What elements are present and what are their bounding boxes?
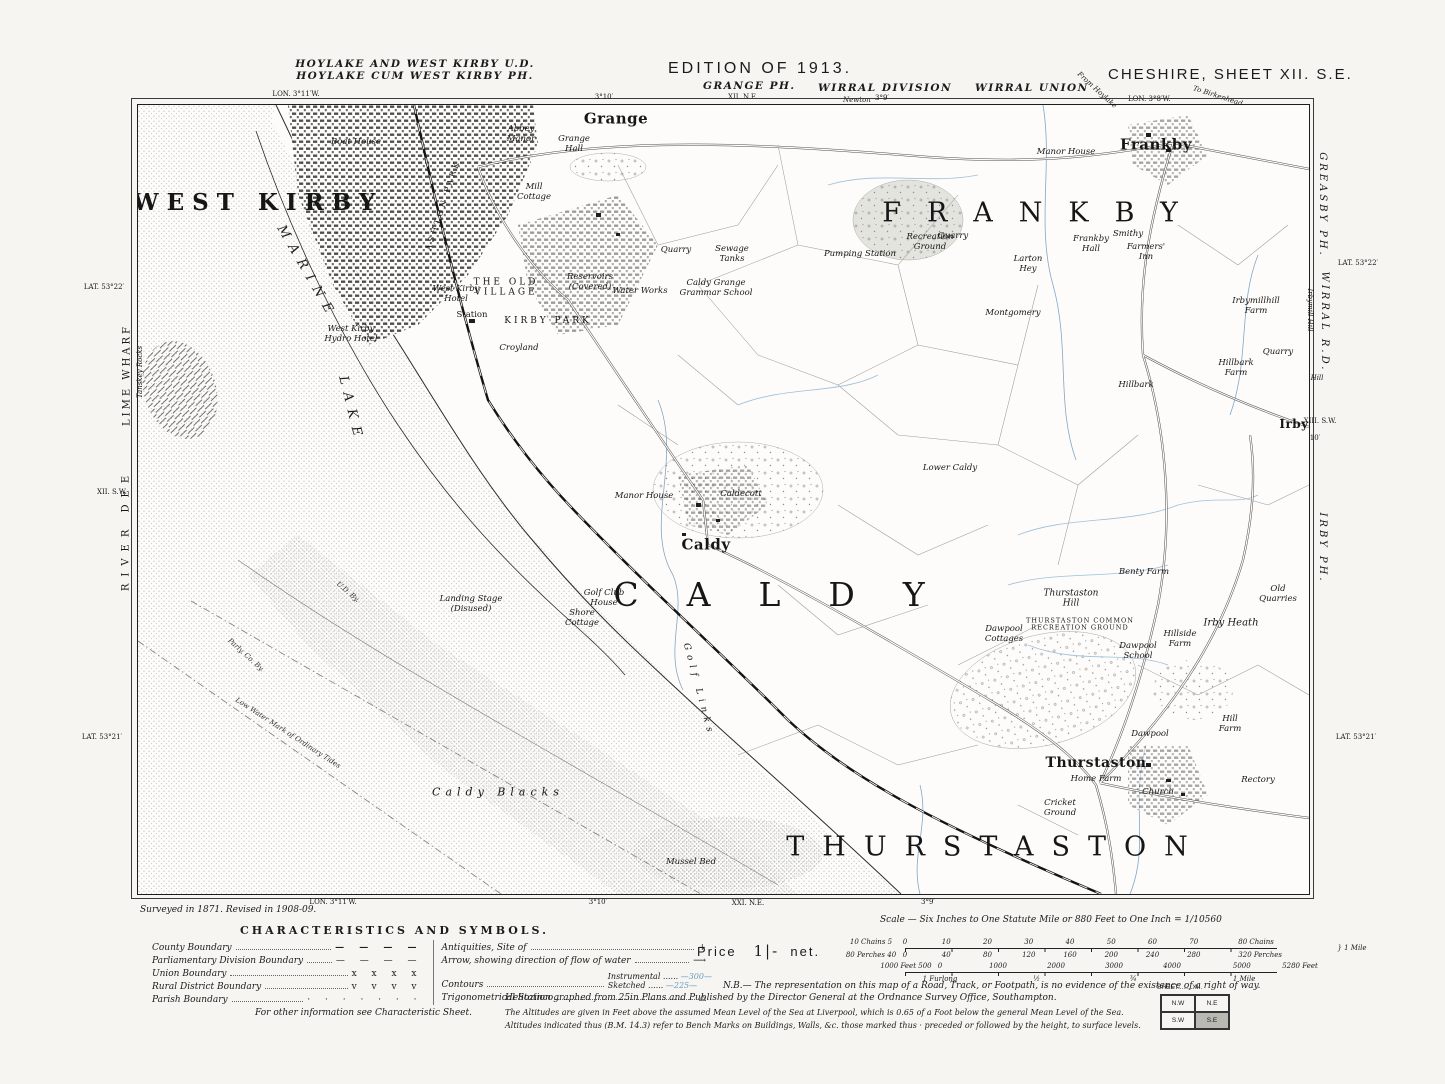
map-label-home-farm: Home Farm [1071,775,1122,785]
district-line2: HOYLAKE CUM WEST KIRBY PH. [250,70,580,82]
legend-row-parish-boundary: Parish Boundary· · · · · · · [152,992,423,1005]
margin-label-3-9: 3°9′ [875,94,889,102]
lon-right-label: LON. 3°8′W. [1128,95,1171,103]
legend-symbol: v v v v [352,982,423,992]
margin-label-xxi-n-e: XXI. N.E. [732,899,764,907]
margin-label-xiii-s-w: XIII. S.W. [1304,417,1337,425]
scale-bar-feet [905,972,1277,976]
legend-label: Antiquities, Site of [442,943,527,953]
margin-label-3-10: 3°10′ [589,898,607,906]
map-label-farmers-inn: Farmers'Inn [1127,243,1165,263]
division-sub-label: Newton [843,96,871,104]
map-label-golf-club-house: Golf ClubHouse [584,589,625,609]
margin-label-lon-3-11-w: LON. 3°11′W. [272,90,319,98]
legend-label: Rural District Boundary [152,982,261,992]
margin-label-irby-ph: IRBY PH. [1316,512,1328,583]
map-label-the-old-village: THE OLDVILLAGE [474,278,539,299]
district-line1: HOYLAKE AND WEST KIRBY U.D. [250,58,580,70]
legend-row-rural-district-boundary: Rural District Boundaryv v v v [152,979,423,992]
map-label-caldy: Caldy [681,536,730,553]
margin-label-tanskey-rocks: Tanskey Rocks [136,346,144,398]
scale-feet-total: 5280 Feet [1282,962,1318,970]
map-label-cricket-ground: CricketGround [1044,799,1076,819]
edition-title: EDITION OF 1913. [668,60,852,78]
sheet-index-grid: N.WN.ES.WS.E [1160,994,1230,1030]
map-label-dawpool-cottages: DawpoolCottages [985,625,1023,645]
map-label-thurstaston-hill: ThurstastonHill [1044,589,1099,610]
price-value: 1|- [753,942,779,960]
margin-label-lat-53-21: LAT. 53°21′ [1336,733,1376,741]
map-label-shore-cottage: ShoreCottage [565,609,599,629]
map-label-quarry: Quarry [938,232,968,242]
legend-row-parliamentary-division-boundary: Parliamentary Division Boundary— — — — [152,953,423,966]
map-label-landing-stage-disused: Landing Stage(Disused) [440,595,503,615]
legend-label: Arrow, showing direction of flow of wate… [442,956,631,966]
map-label-caldy-blacks: Caldy Blacks [432,787,564,800]
map-label-sewage-tanks: SewageTanks [715,245,749,265]
margin-label-wirral-r-d: WIRRAL R.D. [1318,272,1330,373]
map-label-caldy: CALDY [613,576,972,614]
margin-label-10: 10′ [1310,434,1321,442]
margin-label-irbymill-hill: Irbymill Hill [1306,289,1314,332]
map-label-reservoirs-covered: Reservoirs(Covered) [567,273,613,293]
legend-symbol: · · · · · · · [307,995,422,1005]
price-label: Price 1|- net. [697,942,820,960]
map-label-thurstaston: THURSTASTON [786,831,1205,862]
map-label-quarry: Quarry [661,246,691,256]
map-label-hill-farm: HillFarm [1219,715,1242,735]
map-label-pumping-station: Pumping Station [824,250,896,260]
legend-row-contours: ContoursInstrumental ...... —300—Sketche… [442,966,713,990]
map-label-water-works: Water Works [612,287,667,297]
map-label-benty-farm: Benty Farm [1119,568,1169,578]
margin-label-lat-53-22: LAT. 53°22′ [1338,259,1378,267]
map-label-west-kirby-hydro-hotel: West KirbyHydro Hotel [324,325,377,345]
legend-row-county-boundary: County Boundary— — — — [152,940,423,953]
map-label-irby-heath: Irby Heath [1203,617,1258,629]
margin-label-3-9: 3°9′ [921,898,935,906]
union-label: WIRRAL UNION [975,82,1089,94]
margin-label-3-10: 3°10′ [595,93,613,101]
map-label-caldy-grange-grammar-school: Caldy GrangeGrammar School [680,279,753,299]
map-label-mill-cottage: MillCottage [517,183,551,203]
margin-label-lime-wharf: LIME WHARF [121,324,133,426]
sheet-index-cell-se: S.E [1195,1012,1229,1029]
map-label-quarry: Quarry [1263,348,1293,358]
legend-label: Parliamentary Division Boundary [152,956,303,966]
characteristics-footnote: For other information see Characteristic… [255,1008,472,1018]
legend-symbol: — — — — [336,956,423,966]
map-label-lower-caldy: Lower Caldy [923,464,977,474]
map-label-grange: Grange [584,110,648,127]
legend-left-column: County Boundary— — — —Parliamentary Divi… [152,940,423,1005]
map-label-irbymillhill-farm: IrbymillhillFarm [1232,297,1280,317]
map-label-dawpool-school: DawpoolSchool [1119,642,1157,662]
sheet-index-cell-sw: S.W [1161,1012,1195,1029]
map-label-west-kirby: WEST KIRBY [137,190,383,216]
characteristics-title: CHARACTERISTICS AND SYMBOLS. [240,924,549,937]
map-label-hillbark-farm: HillbarkFarm [1218,359,1253,379]
map-label-thurstaston-common-recreation-ground: THURSTASTON COMMONRECREATION GROUND [1026,618,1134,633]
survey-note: Surveyed in 1871. Revised in 1908-09. [140,905,316,915]
map-label-church: Church [1142,788,1174,798]
map-label-old-quarries: OldQuarries [1259,585,1297,605]
division-label: WIRRAL DIVISION [818,82,952,94]
map-area: WEST KIRBYMARINELAKEFRANKBYFrankbyGrange… [137,104,1310,895]
map-label-caldecott: Caldecott [720,490,761,500]
margin-label-lon-3-11-w: LON. 3°11′W. [309,898,356,906]
altitude-note-1: The Altitudes are given in Feet above th… [505,1008,1124,1017]
map-label-manor-house: Manor House [615,492,674,502]
legend-row-antiquities-site-of: Antiquities, Site of+ [442,940,713,953]
parish-label: GRANGE PH. [703,80,796,92]
map-label-frankby-hall: FrankbyHall [1073,235,1109,255]
margin-label-lat-53-21: LAT. 53°21′ [82,733,122,741]
map-label-rectory: Rectory [1241,776,1275,786]
district-title: HOYLAKE AND WEST KIRBY U.D. HOYLAKE CUM … [250,58,580,82]
map-label-larton-hey: LartonHey [1014,255,1043,275]
map-label-abbey-manor: AbbeyManor [507,125,535,145]
margin-label-lat-53-22: LAT. 53°22′ [84,283,124,291]
map-label-croyland: Croyland [499,344,538,354]
legend-label: Union Boundary [152,969,226,979]
map-label-hillside-farm: HillsideFarm [1163,630,1196,650]
map-label-kirby-park: KIRBY PARK [504,316,592,326]
legend-label: Parish Boundary [152,995,228,1005]
legend-label: Contours [442,980,484,990]
map-label-west-kirby-hotel: West KirbyHotel [433,285,480,305]
map-label-grange-hall: GrangeHall [558,135,590,155]
legend-label: County Boundary [152,943,232,953]
map-label-smithy: Smithy [1113,230,1143,240]
map-label-dawpool: Dawpool [1131,730,1169,740]
parish-sheet-ref: XII. N.E. [728,93,758,101]
legend-row-arrow-showing-direction-of-flow-of-water: Arrow, showing direction of flow of wate… [442,953,713,966]
map-label-boat-house: Boat House [331,138,381,148]
legend-symbol: — — — — [335,943,422,953]
sheet-title: CHESHIRE, SHEET XII. S.E. [1108,66,1353,83]
sheet-index-title: SHEET........XII. [1157,984,1202,991]
grange-village-blocks [518,195,658,335]
map-label-frankby: FRANKBY [882,197,1204,228]
sheet-index-cell-nw: N.W [1161,995,1195,1012]
altitude-note-2: Altitudes indicated thus (B.M. 14.3) ref… [505,1021,1141,1030]
map-label-hillbark: Hillbark [1118,381,1153,391]
margin-label-greasby-ph: GREASBY PH. [1316,152,1328,257]
map-label-frankby: Frankby [1120,136,1192,153]
map-label-station: Station [456,311,487,321]
scale-title: Scale — Six Inches to One Statute Mile o… [880,915,1222,925]
legend-symbol: x x x x [352,969,423,979]
scale-mile-brace: } 1 Mile [1337,944,1366,952]
margin-label-hill: Hill [1311,374,1324,382]
map-sheet-page: { "header": { "district_line1": "HOYLAKE… [0,0,1445,1084]
sheet-index-cell-ne: N.E [1195,995,1229,1012]
price-word: Price [697,944,737,959]
map-label-manor-house: Manor House [1037,148,1096,158]
map-label-montgomery: Montgomery [985,309,1040,319]
legend-row-union-boundary: Union Boundaryx x x x [152,966,423,979]
map-label-mussel-bed: Mussel Bed [666,858,716,868]
map-label-thurstaston: Thurstaston [1046,755,1147,771]
helio-note: Heliozincographed from 25in Plans and Pu… [505,993,1057,1003]
margin-label-xii-s-w: XII. S.W. [97,488,127,496]
price-net: net. [790,944,820,959]
scale-bar-chains [905,948,1277,952]
